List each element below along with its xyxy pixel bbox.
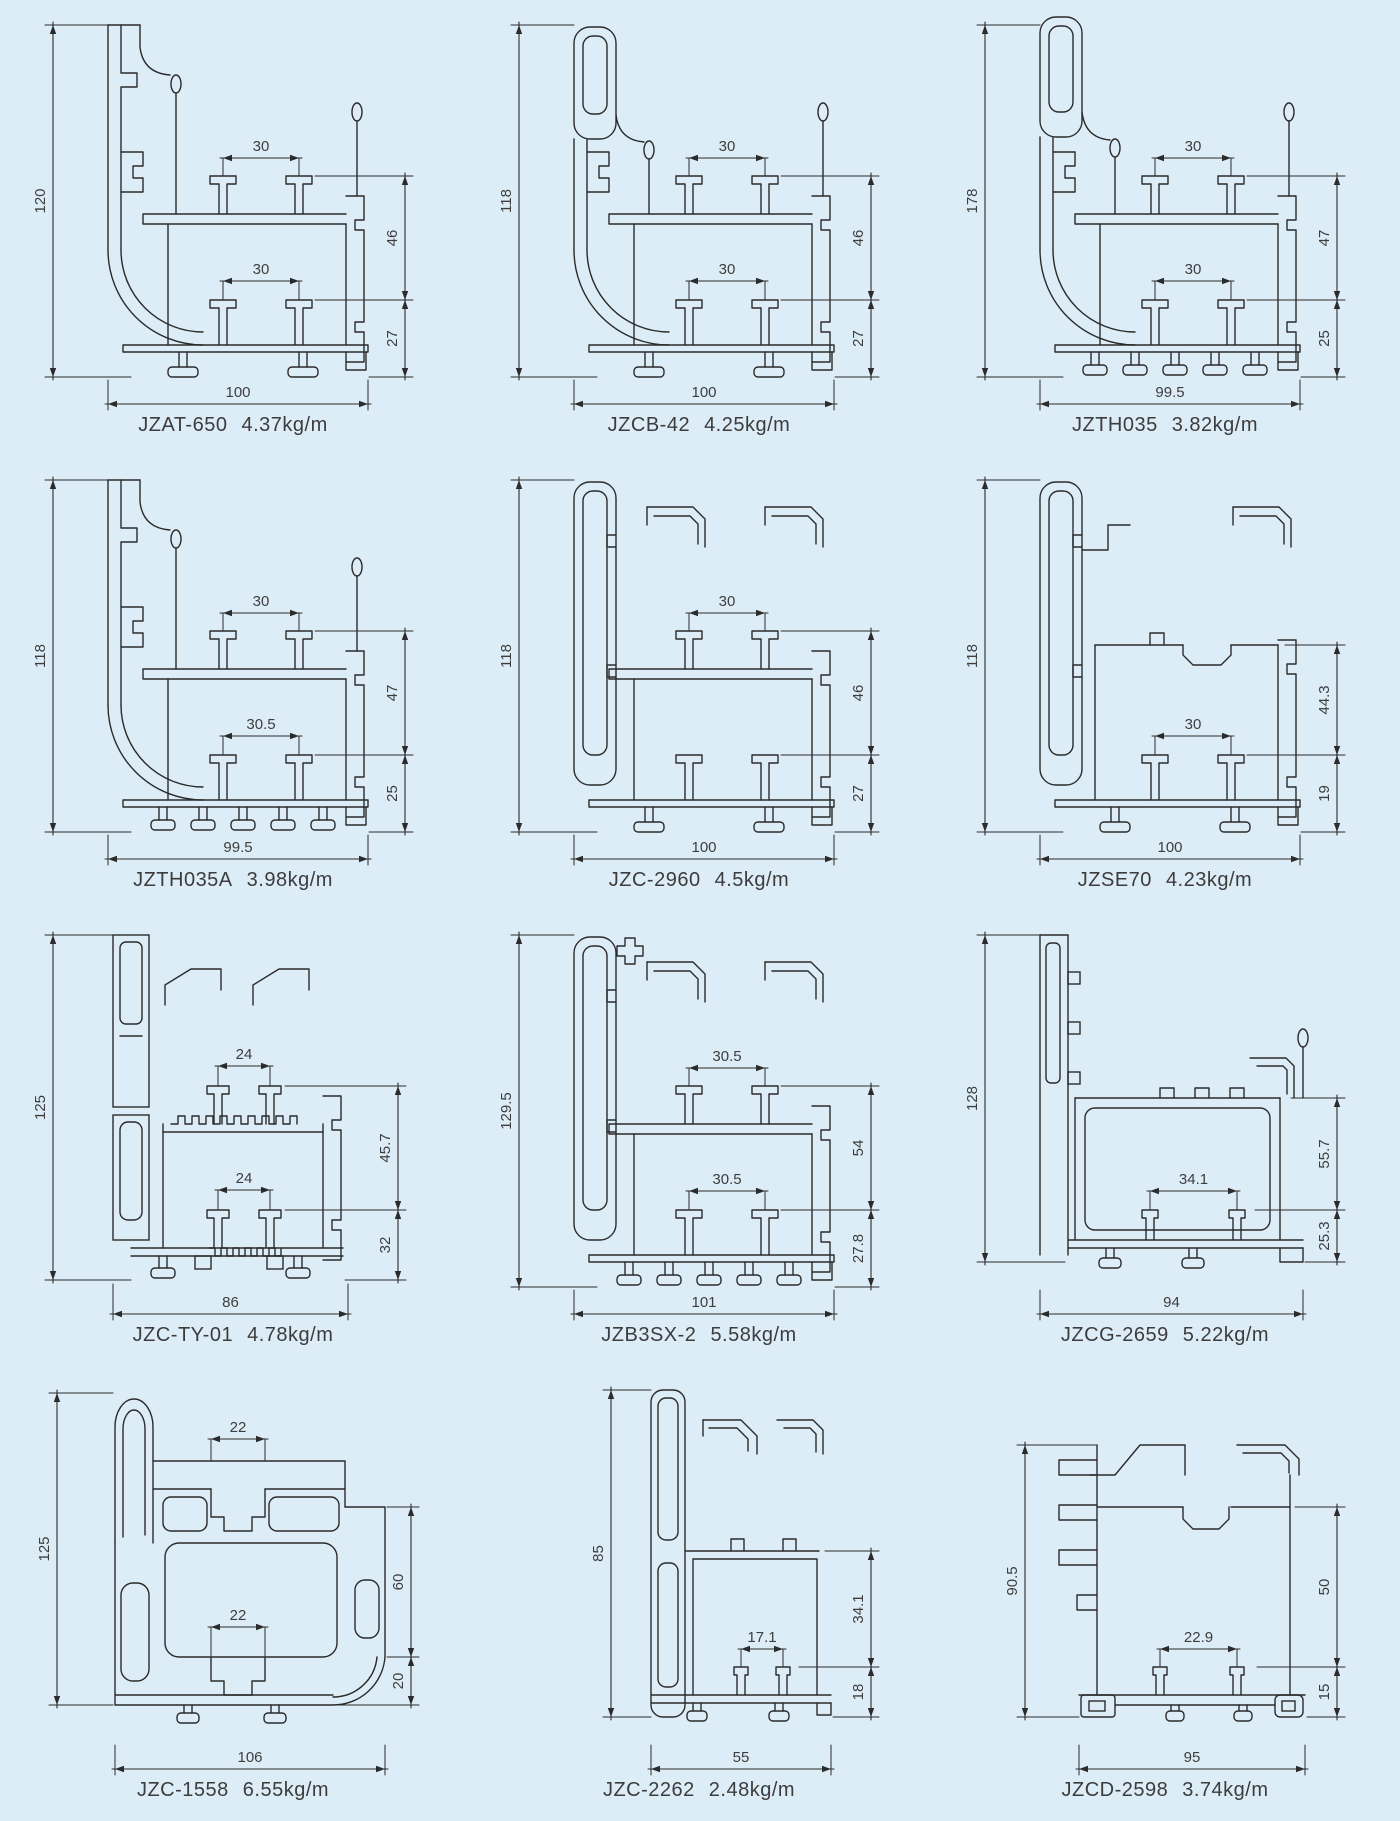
svg-text:24: 24 [236, 1046, 253, 1063]
profile-cell: 855534.11817.1 JZC-22622.48kg/m [466, 1365, 932, 1820]
profile-code: JZCB-42 [608, 414, 690, 436]
profile-weight: 4.37kg/m [241, 414, 327, 436]
profile-diagram-jzcd-2598: 90.595501522.9 [932, 1365, 1398, 1777]
svg-text:30: 30 [719, 261, 736, 278]
svg-text:55: 55 [733, 1749, 750, 1766]
svg-text:125: 125 [32, 1095, 49, 1120]
svg-text:27: 27 [850, 785, 867, 802]
svg-text:100: 100 [225, 384, 250, 401]
svg-text:129.5: 129.5 [498, 1092, 515, 1130]
profile-weight: 3.74kg/m [1182, 1779, 1268, 1801]
svg-text:118: 118 [498, 644, 515, 668]
svg-text:30: 30 [253, 593, 270, 610]
svg-text:30: 30 [1185, 716, 1202, 733]
profile-weight: 4.78kg/m [247, 1324, 333, 1346]
profile-cell: 90.595501522.9 JZCD-25983.74kg/m [932, 1365, 1398, 1820]
svg-text:32: 32 [377, 1237, 394, 1254]
svg-text:24: 24 [236, 1170, 253, 1187]
profile-cell: 12510660202222 JZC-15586.55kg/m [0, 1365, 466, 1820]
profile-caption: JZCD-25983.74kg/m [1061, 1779, 1268, 1802]
profile-code: JZC-2262 [603, 1779, 695, 1801]
svg-text:46: 46 [850, 685, 867, 702]
svg-text:44.3: 44.3 [1316, 685, 1333, 714]
profile-weight: 4.23kg/m [1166, 869, 1252, 891]
profile-catalog-page: 12010046273030 JZAT-6504.37kg/m 11810046… [0, 0, 1400, 1821]
svg-text:27: 27 [384, 330, 401, 347]
svg-text:86: 86 [222, 1294, 239, 1311]
svg-text:118: 118 [964, 644, 981, 668]
profile-diagram-jzse70: 11810044.31930 [932, 455, 1398, 867]
profile-caption: JZC-15586.55kg/m [137, 1779, 329, 1802]
svg-text:30: 30 [719, 138, 736, 155]
svg-text:118: 118 [32, 644, 49, 668]
profile-cell: 129.51015427.830.530.5 JZB3SX-25.58kg/m [466, 910, 932, 1365]
profile-cell: 118100462730 JZC-29604.5kg/m [466, 455, 932, 910]
svg-text:50: 50 [1316, 1579, 1333, 1596]
profile-cell: 1289455.725.334.1 JZCG-26595.22kg/m [932, 910, 1398, 1365]
profile-cell: 11810046273030 JZCB-424.25kg/m [466, 0, 932, 455]
profile-cell: 11899.547253030.5 JZTH035A3.98kg/m [0, 455, 466, 910]
svg-text:30: 30 [719, 593, 736, 610]
svg-text:106: 106 [237, 1749, 262, 1766]
svg-text:22: 22 [230, 1607, 247, 1624]
svg-text:47: 47 [384, 685, 401, 702]
profile-diagram-jzc-1558: 12510660202222 [0, 1365, 466, 1777]
profile-caption: JZCG-26595.22kg/m [1061, 1324, 1269, 1347]
profile-code: JZTH035 [1072, 414, 1158, 436]
svg-text:85: 85 [590, 1545, 607, 1562]
profile-weight: 5.22kg/m [1183, 1324, 1269, 1346]
svg-text:30.5: 30.5 [712, 1048, 741, 1065]
profile-diagram-jzc-2262: 855534.11817.1 [466, 1365, 932, 1777]
svg-text:15: 15 [1316, 1684, 1333, 1701]
svg-text:18: 18 [850, 1684, 867, 1701]
svg-text:25: 25 [1316, 330, 1333, 347]
profile-diagram-jzb3sx-2: 129.51015427.830.530.5 [466, 910, 932, 1322]
svg-text:99.5: 99.5 [1155, 384, 1184, 401]
profile-weight: 4.5kg/m [715, 869, 790, 891]
svg-text:99.5: 99.5 [223, 839, 252, 856]
profile-caption: JZSE704.23kg/m [1078, 869, 1252, 892]
svg-text:30: 30 [253, 261, 270, 278]
svg-text:34.1: 34.1 [850, 1594, 867, 1623]
svg-text:17.1: 17.1 [747, 1629, 776, 1646]
svg-text:101: 101 [691, 1294, 716, 1311]
profile-weight: 4.25kg/m [704, 414, 790, 436]
profile-cell: 11810044.31930 JZSE704.23kg/m [932, 455, 1398, 910]
profile-diagram-jzth035a: 11899.547253030.5 [0, 455, 466, 867]
svg-text:34.1: 34.1 [1179, 1171, 1208, 1188]
profile-diagram-jzc-ty-01: 1258645.7322424 [0, 910, 466, 1322]
svg-text:128: 128 [964, 1086, 981, 1111]
svg-text:45.7: 45.7 [377, 1133, 394, 1162]
svg-text:46: 46 [384, 230, 401, 247]
svg-text:30: 30 [1185, 138, 1202, 155]
profile-code: JZCD-2598 [1061, 1779, 1168, 1801]
svg-text:19: 19 [1316, 785, 1333, 802]
profile-weight: 3.98kg/m [247, 869, 333, 891]
profile-cell: 17899.547253030 JZTH0353.82kg/m [932, 0, 1398, 455]
svg-text:27: 27 [850, 330, 867, 347]
svg-text:30.5: 30.5 [712, 1171, 741, 1188]
svg-text:22: 22 [230, 1419, 247, 1436]
profile-caption: JZTH0353.82kg/m [1072, 414, 1258, 437]
profile-code: JZSE70 [1078, 869, 1152, 891]
profile-weight: 2.48kg/m [709, 1779, 795, 1801]
profile-weight: 3.82kg/m [1172, 414, 1258, 436]
svg-text:30.5: 30.5 [246, 716, 275, 733]
svg-text:47: 47 [1316, 230, 1333, 247]
svg-text:22.9: 22.9 [1184, 1629, 1213, 1646]
profile-weight: 6.55kg/m [243, 1779, 329, 1801]
profile-code: JZAT-650 [138, 414, 227, 436]
svg-text:94: 94 [1163, 1294, 1180, 1311]
profile-code: JZC-TY-01 [133, 1324, 233, 1346]
svg-text:100: 100 [1157, 839, 1182, 856]
profile-diagram-jzth035: 17899.547253030 [932, 0, 1398, 412]
profile-code: JZC-1558 [137, 1779, 229, 1801]
svg-text:90.5: 90.5 [1004, 1566, 1021, 1595]
svg-text:60: 60 [390, 1574, 407, 1591]
svg-text:30: 30 [253, 138, 270, 155]
profile-caption: JZB3SX-25.58kg/m [601, 1324, 796, 1347]
svg-text:25.3: 25.3 [1316, 1221, 1333, 1250]
profile-code: JZC-2960 [609, 869, 701, 891]
profile-diagram-jzcg-2659: 1289455.725.334.1 [932, 910, 1398, 1322]
profile-code: JZCG-2659 [1061, 1324, 1169, 1346]
svg-text:27.8: 27.8 [850, 1234, 867, 1263]
svg-text:100: 100 [691, 384, 716, 401]
profile-caption: JZCB-424.25kg/m [608, 414, 791, 437]
svg-text:54: 54 [850, 1140, 867, 1157]
profile-weight: 5.58kg/m [710, 1324, 796, 1346]
svg-text:46: 46 [850, 230, 867, 247]
profile-code: JZTH035A [133, 869, 233, 891]
svg-text:30: 30 [1185, 261, 1202, 278]
svg-text:118: 118 [498, 189, 515, 213]
profile-diagram-jzc-2960: 118100462730 [466, 455, 932, 867]
profile-diagram-jzat-650: 12010046273030 [0, 0, 466, 412]
profile-caption: JZC-22622.48kg/m [603, 1779, 795, 1802]
svg-text:125: 125 [36, 1536, 53, 1561]
profile-caption: JZC-29604.5kg/m [609, 869, 789, 892]
svg-text:100: 100 [691, 839, 716, 856]
svg-text:20: 20 [390, 1673, 407, 1690]
svg-text:178: 178 [964, 188, 981, 213]
profile-diagram-jzcb-42: 11810046273030 [466, 0, 932, 412]
profile-code: JZB3SX-2 [601, 1324, 696, 1346]
svg-text:55.7: 55.7 [1316, 1139, 1333, 1168]
svg-text:120: 120 [32, 188, 49, 213]
profile-caption: JZTH035A3.98kg/m [133, 869, 333, 892]
svg-text:95: 95 [1184, 1749, 1201, 1766]
svg-text:25: 25 [384, 785, 401, 802]
profile-cell: 1258645.7322424 JZC-TY-014.78kg/m [0, 910, 466, 1365]
profile-caption: JZC-TY-014.78kg/m [133, 1324, 334, 1347]
profile-cell: 12010046273030 JZAT-6504.37kg/m [0, 0, 466, 455]
profile-caption: JZAT-6504.37kg/m [138, 414, 327, 437]
